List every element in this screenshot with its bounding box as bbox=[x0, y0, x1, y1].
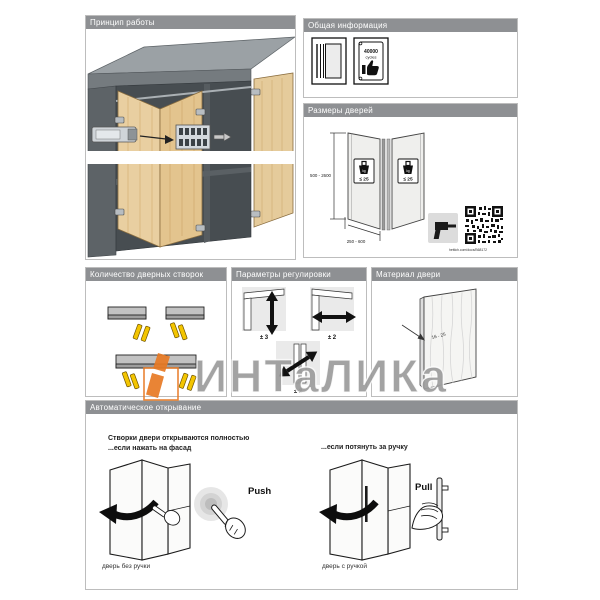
adjustment-illustration: ± 3 ± 2 ± 2 bbox=[232, 281, 366, 395]
panel-general-info: Общая информация 40000 cycles bbox=[303, 18, 518, 98]
push-illustration: Push bbox=[96, 456, 301, 568]
weight-badge: kg ≤ 25 bbox=[354, 159, 374, 183]
panel-principle: Принцип работы bbox=[85, 15, 296, 260]
open-arrow bbox=[99, 504, 117, 524]
cabinet-illustration bbox=[86, 29, 295, 259]
adjust-gap-value: ± 2 bbox=[294, 389, 303, 395]
pull-label: Pull bbox=[415, 482, 432, 493]
adapter-plate bbox=[176, 125, 210, 149]
height-dimension bbox=[330, 133, 346, 219]
pull-illustration: Pull bbox=[316, 456, 516, 568]
weight-unit: kg bbox=[406, 169, 410, 173]
panel-leaf-count: Количество дверных створок bbox=[85, 267, 227, 397]
open-arrow bbox=[319, 504, 337, 524]
leaf-count-illustration bbox=[86, 281, 226, 395]
drill-icon bbox=[428, 213, 458, 243]
general-info-icons: 40000 cycles bbox=[304, 32, 517, 96]
weight-limit: ≤ 25 bbox=[359, 177, 369, 183]
auto-opening-right-heading: ...если потянуть за ручку bbox=[321, 444, 408, 451]
heading-line2: ...если нажать на фасад bbox=[108, 444, 249, 454]
cycles-certificate-icon: 40000 cycles bbox=[354, 38, 388, 84]
catalog-icon bbox=[312, 38, 346, 84]
weight-badge: kg ≤ 25 bbox=[398, 159, 418, 183]
open-folding-doors bbox=[115, 91, 205, 247]
adjust-horizontal-value: ± 2 bbox=[328, 335, 337, 341]
adjust-vertical-value: ± 3 bbox=[260, 335, 269, 341]
right-door bbox=[251, 73, 293, 227]
panel-adjustment-title: Параметры регулировки bbox=[232, 268, 366, 281]
heading-line1: Створки двери открываются полностью bbox=[108, 434, 249, 444]
qr-code bbox=[464, 205, 504, 245]
push-label: Push bbox=[248, 486, 271, 497]
auto-opening-heading: Створки двери открываются полностью ...е… bbox=[108, 434, 249, 453]
panel-auto-opening-title: Автоматическое открывание bbox=[86, 401, 517, 414]
panel-door-material-title: Материал двери bbox=[372, 268, 517, 281]
width-range-label: 250 - 600 bbox=[347, 239, 366, 244]
panel-auto-opening: Автоматическое открывание Створки двери … bbox=[85, 400, 518, 590]
adjust-vertical bbox=[242, 287, 286, 335]
adjust-horizontal bbox=[310, 287, 356, 331]
height-range-label: 500 - 2600 bbox=[310, 173, 332, 178]
info-link: hettich.com/docs/B68172 bbox=[449, 248, 487, 252]
door-handle bbox=[365, 486, 368, 522]
cycles-unit: cycles bbox=[365, 55, 376, 60]
panel-door-sizes-title: Размеры дверей bbox=[304, 104, 517, 117]
adjust-gap bbox=[275, 341, 320, 385]
caption-no-handle: дверь без ручки bbox=[102, 563, 150, 570]
panel-adjustment: Параметры регулировки ± 3 ± 2 bbox=[231, 267, 367, 397]
weight-unit: kg bbox=[362, 169, 366, 173]
panel-door-sizes: Размеры дверей 500 - 2600 250 - 600 kg bbox=[303, 103, 518, 258]
door-material-illustration: 16 - 25 bbox=[372, 281, 517, 395]
panel-principle-title: Принцип работы bbox=[86, 16, 295, 29]
panel-general-info-title: Общая информация bbox=[304, 19, 517, 32]
weight-limit: ≤ 25 bbox=[403, 177, 413, 183]
caption-with-handle: дверь с ручкой bbox=[322, 563, 367, 570]
panel-door-material: Материал двери 16 - 25 bbox=[371, 267, 518, 397]
panel-leaf-count-title: Количество дверных створок bbox=[86, 268, 226, 281]
door-sizes-illustration: 500 - 2600 250 - 600 kg ≤ 25 kg ≤ 25 bbox=[304, 117, 517, 257]
